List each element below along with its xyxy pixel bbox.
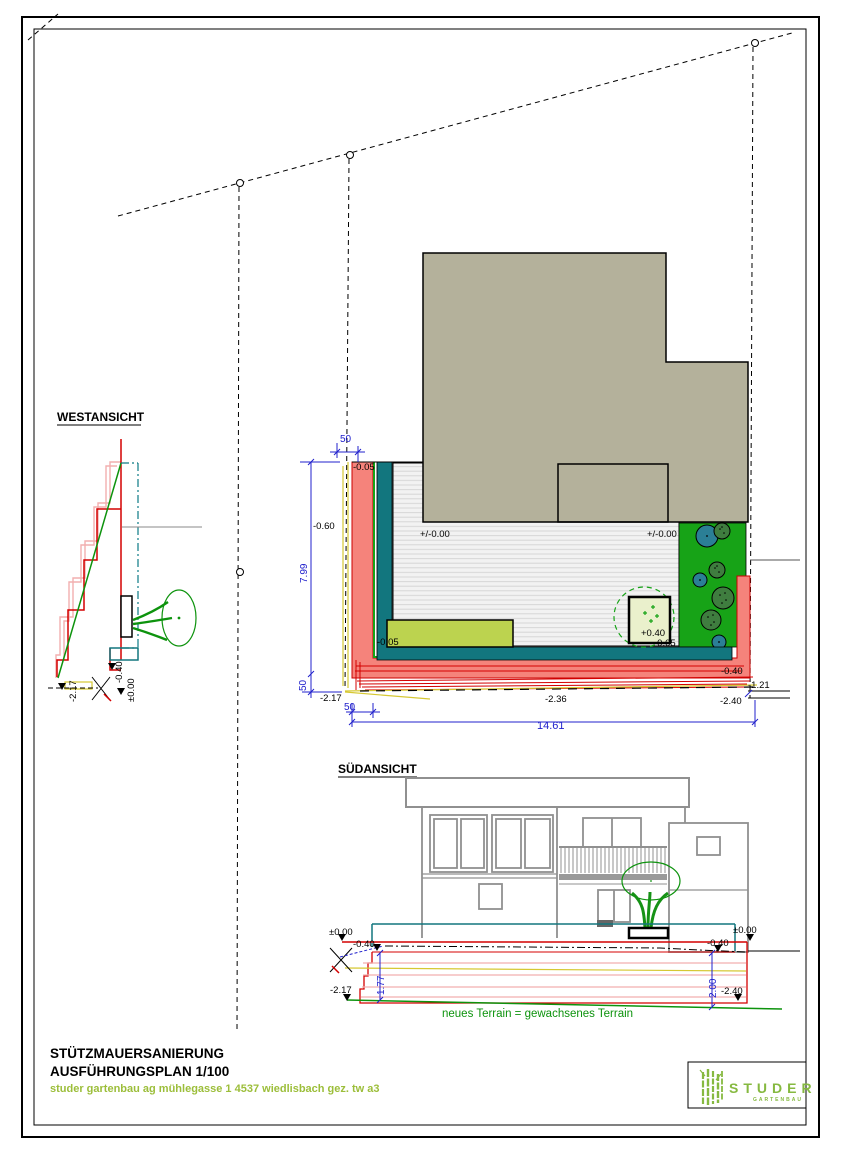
logo-tagline: GARTENBAU <box>753 1097 803 1103</box>
project-title: STÜTZMAUERSANIERUNG <box>50 1046 224 1061</box>
lower-window <box>479 884 502 909</box>
level-label: -0.40 <box>353 939 375 950</box>
foundation-west <box>110 648 138 660</box>
annex-window <box>697 837 720 855</box>
terrain-slope-line-west <box>58 463 121 678</box>
red-tick-south <box>332 966 339 973</box>
plan-view: 50 7.99 50 50 14.61 -0.05 -0.60 -2.17 +/… <box>298 253 800 732</box>
wall-section-west <box>121 596 132 637</box>
level-label: ±0.00 <box>733 925 757 936</box>
terrain-note: neues Terrain = gewachsenes Terrain <box>442 1008 633 1020</box>
south-elevation-title: SÜDANSICHT <box>338 761 417 776</box>
dim-wall-width-bottom: 50 <box>344 702 356 713</box>
house-south <box>406 778 748 952</box>
west-elevation-title: WESTANSICHT <box>57 410 145 424</box>
dim-wall-height-right: 2.00 <box>708 978 719 998</box>
boundary-line-diagonal <box>118 33 792 216</box>
level-label: -0.40 <box>707 938 729 949</box>
south-elevation: SÜDANSICHT <box>329 761 800 1020</box>
tree-planter-south <box>629 928 668 938</box>
level-label: -2.17 <box>320 693 342 704</box>
existing-terrain-dashdot-south <box>385 946 745 952</box>
level-label: -0.05 <box>377 637 399 648</box>
level-label: -2.17 <box>68 680 79 702</box>
logo-name: STUDER <box>729 1080 817 1096</box>
title-block: STÜTZMAUERSANIERUNG AUSFÜHRUNGSPLAN 1/10… <box>50 1046 380 1095</box>
zero-level-line-south <box>372 924 735 951</box>
level-label: -0.05 <box>654 638 676 649</box>
new-wall-steps-west <box>57 439 121 677</box>
west-elevation: WESTANSICHT <box>48 410 202 702</box>
level-label: ±0.00 <box>126 678 137 702</box>
level-label: -2.17 <box>330 985 352 996</box>
wall-end-lines-right <box>748 691 790 698</box>
upper-windows <box>430 815 553 872</box>
level-label: -0.60 <box>313 521 335 532</box>
level-label: -0.40 <box>721 666 743 677</box>
floor-lines <box>422 874 557 878</box>
level-label: +/-0.00 <box>647 529 677 540</box>
level-label: -2.40 <box>721 986 743 997</box>
dim-wall-length-bottom: 14.61 <box>537 720 565 732</box>
level-arrows-south <box>338 934 754 1001</box>
building-footprint <box>423 253 748 522</box>
logo-block: STUDER GARTENBAU <box>688 1062 817 1108</box>
roof-slab <box>406 778 689 807</box>
level-label: -2.40 <box>720 696 742 707</box>
balcony-railing-bars <box>561 848 665 873</box>
tree-west <box>133 590 196 646</box>
plan-sheet: 50 7.99 50 50 14.61 -0.05 -0.60 -2.17 +/… <box>0 0 841 1155</box>
dim-wall-length-left: 7.99 <box>299 563 310 583</box>
dim-wall-width-top: 50 <box>340 434 352 445</box>
level-label: +/-0.00 <box>420 529 450 540</box>
level-label: -2.36 <box>545 694 567 705</box>
drawing-canvas: 50 7.99 50 50 14.61 -0.05 -0.60 -2.17 +/… <box>0 0 841 1155</box>
level-label: -0.40 <box>114 661 125 683</box>
balcony-slab <box>559 874 667 880</box>
planting-bed <box>387 620 513 647</box>
demolition-cross-south <box>330 948 352 972</box>
plan-title: AUSFÜHRUNGSPLAN 1/100 <box>50 1064 229 1079</box>
level-label: -1.21 <box>748 680 770 691</box>
firm-line: studer gartenbau ag mühlegasse 1 4537 wi… <box>50 1083 380 1095</box>
dim-wall-height-left: 1.77 <box>376 975 387 995</box>
boundary-line-vertical-1 <box>237 187 239 1032</box>
level-label: ±0.00 <box>329 927 353 938</box>
red-tick-west <box>104 694 111 701</box>
level-label: -0.05 <box>353 462 375 473</box>
survey-yellow-south <box>345 968 746 971</box>
dim-wall-width-left: 50 <box>298 679 309 691</box>
